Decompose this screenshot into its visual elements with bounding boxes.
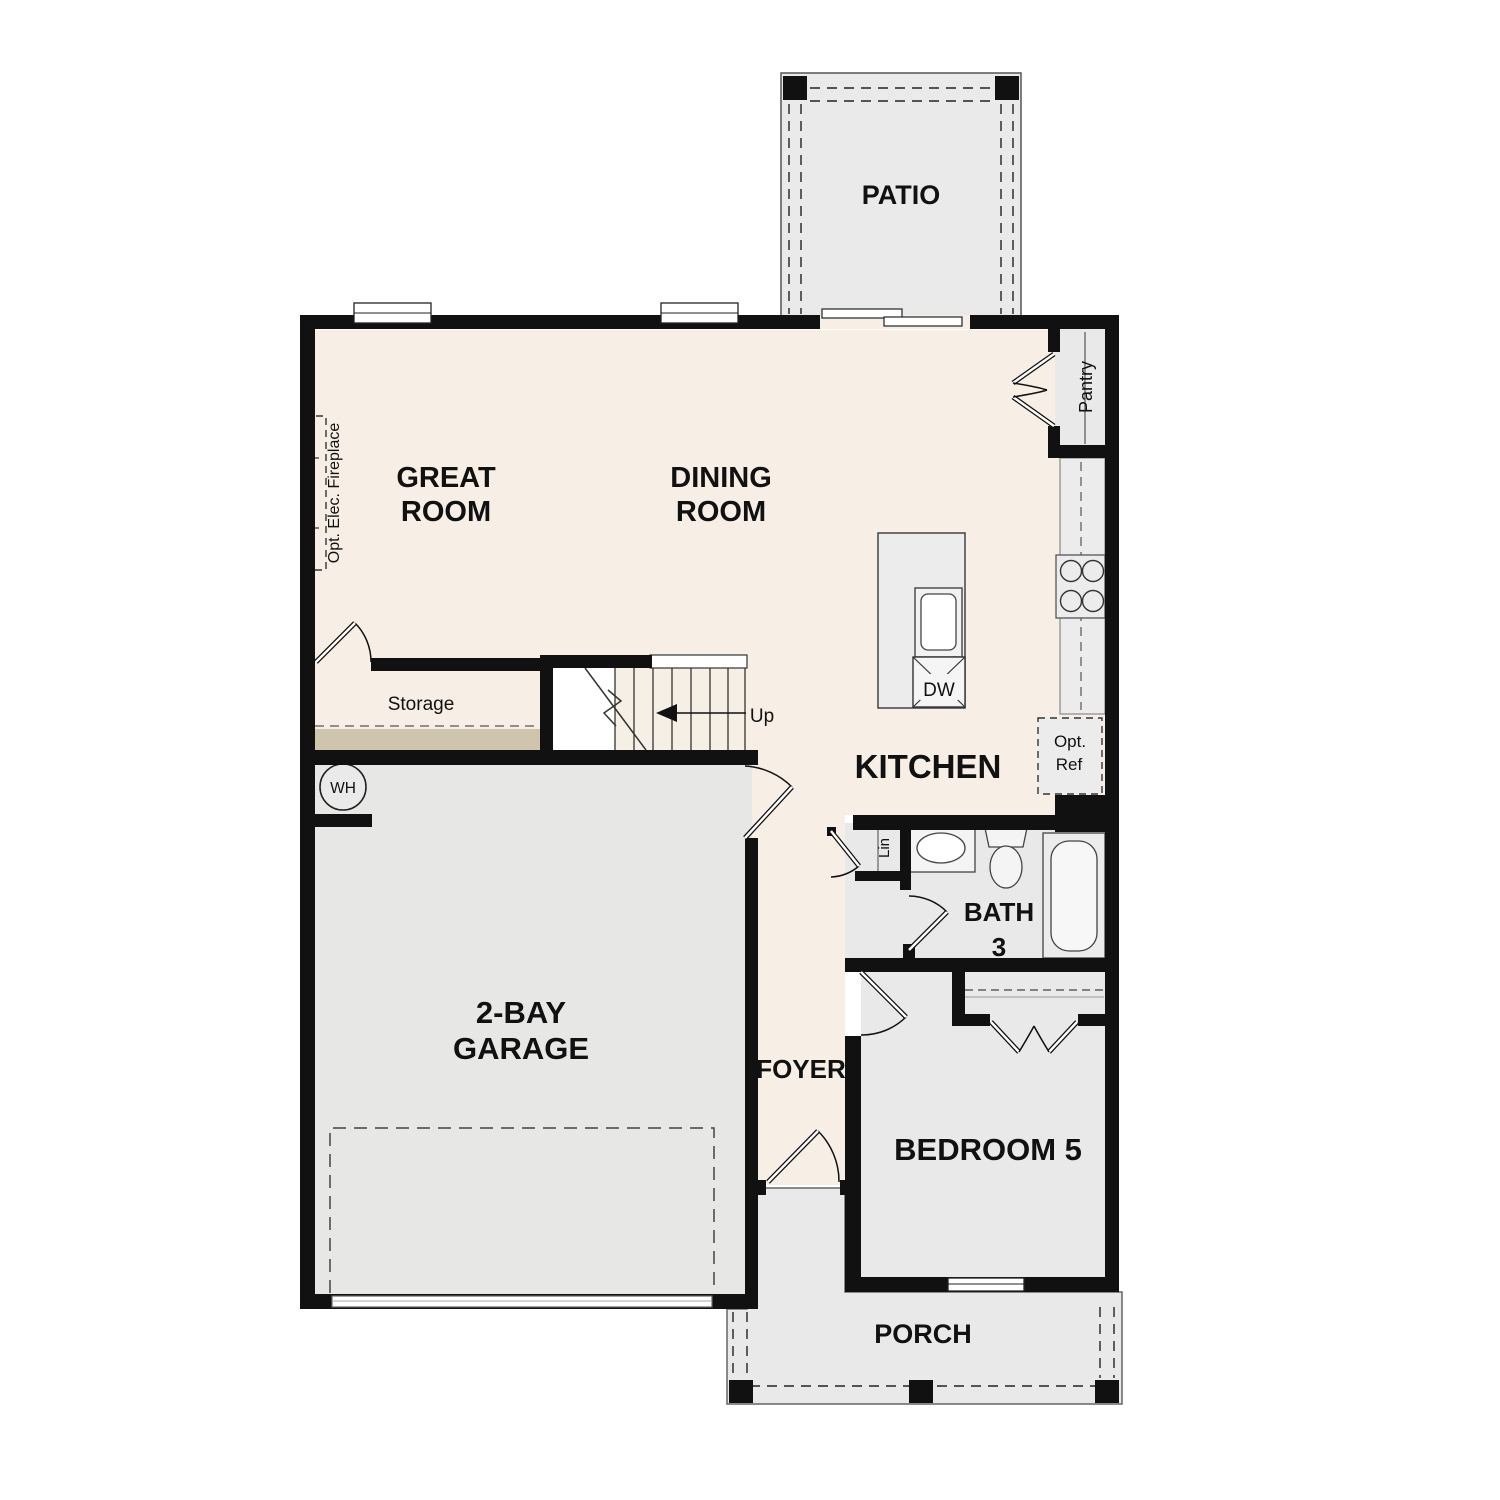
water-heater-label: WH xyxy=(330,780,356,797)
porch-label: PORCH xyxy=(874,1319,972,1349)
storage-label: Storage xyxy=(388,694,455,715)
bath3-label-2: 3 xyxy=(992,932,1006,962)
pantry-label: Pantry xyxy=(1076,361,1096,413)
great-room-label-1: GREAT xyxy=(396,462,496,494)
dining-room-label-1: DINING xyxy=(670,462,772,494)
wall-closet-stub-left xyxy=(952,1014,990,1026)
wall-pantry-bottom xyxy=(1048,445,1119,458)
wall-storage xyxy=(371,658,545,671)
linen-label: Lin xyxy=(876,838,893,858)
tub-basin xyxy=(1051,841,1097,951)
porch-post-middle xyxy=(909,1380,933,1403)
wall-foyer-bedroom xyxy=(845,1036,861,1292)
slider-panel-2 xyxy=(884,317,962,326)
garage-label-1: 2-BAY xyxy=(476,995,566,1030)
storage-shelf-strip xyxy=(315,729,540,752)
up-label: Up xyxy=(750,706,774,727)
patio-post-right xyxy=(995,76,1019,100)
stair-rail-band xyxy=(650,655,747,668)
patio-label: PATIO xyxy=(862,180,941,210)
wall-pantry-stub-top xyxy=(1048,322,1060,352)
wall-foyer-bottom-left xyxy=(745,1180,766,1195)
island-sink-basin xyxy=(921,594,956,650)
opt-ref-label-2: Ref xyxy=(1056,755,1083,774)
wall-kitchen-corner xyxy=(1055,795,1119,832)
wall-stair-left xyxy=(540,655,553,755)
stairs-landing xyxy=(552,668,615,750)
toilet-tank xyxy=(985,828,1027,847)
foyer-label: FOYER xyxy=(756,1054,846,1084)
floor-plan-svg: PATIO GREAT ROOM DINING ROOM KITCHEN FOY… xyxy=(0,0,1500,1500)
wall-wh-stub xyxy=(314,814,372,827)
fireplace-label: Opt. Elec. Fireplace xyxy=(326,423,343,564)
dining-room-label-2: ROOM xyxy=(676,496,766,528)
bath3-label-1: BATH xyxy=(964,897,1034,927)
great-room-label-2: ROOM xyxy=(401,496,491,528)
dishwasher-label: DW xyxy=(923,680,955,701)
wall-stair-top xyxy=(552,655,652,668)
bedroom5-label: BEDROOM 5 xyxy=(894,1132,1082,1167)
garage-label-2: GARAGE xyxy=(453,1031,589,1066)
floor-areas xyxy=(308,73,1122,1404)
wall-linen-bottom xyxy=(855,871,905,881)
toilet-bowl xyxy=(990,846,1022,888)
wall-bath-bottom xyxy=(845,958,1105,972)
porch-post-right xyxy=(1095,1380,1119,1403)
wall-closet-stub-right xyxy=(1078,1014,1105,1026)
opt-ref-label-1: Opt. xyxy=(1054,732,1086,751)
kitchen-label: KITCHEN xyxy=(855,748,1002,785)
floor-plan-page: PATIO GREAT ROOM DINING ROOM KITCHEN FOY… xyxy=(0,0,1500,1500)
patio-post-left xyxy=(783,76,807,100)
wall-kitchen-bath xyxy=(853,815,1060,830)
wall-left xyxy=(300,315,315,1309)
porch-post-left xyxy=(729,1380,753,1403)
wall-garage-top xyxy=(300,750,758,765)
bath-sink xyxy=(917,833,965,863)
